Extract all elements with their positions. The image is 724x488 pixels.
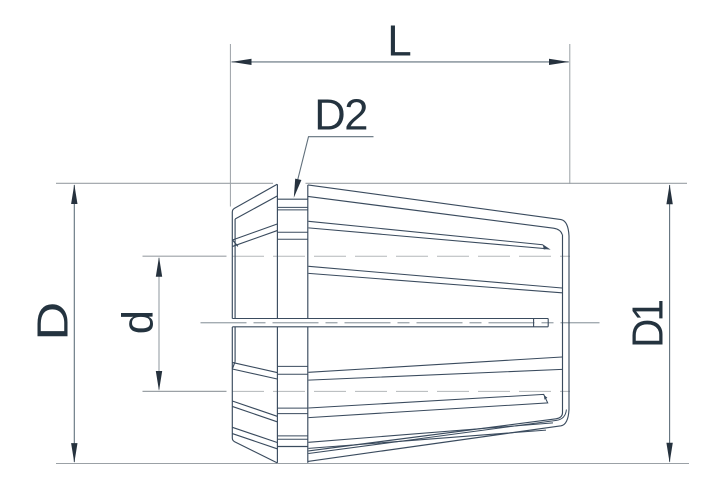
svg-text:D1: D1 xyxy=(623,300,672,348)
svg-text:d: d xyxy=(114,310,162,334)
svg-text:D: D xyxy=(29,302,77,341)
svg-text:D2: D2 xyxy=(314,92,367,140)
svg-text:L: L xyxy=(387,17,411,66)
